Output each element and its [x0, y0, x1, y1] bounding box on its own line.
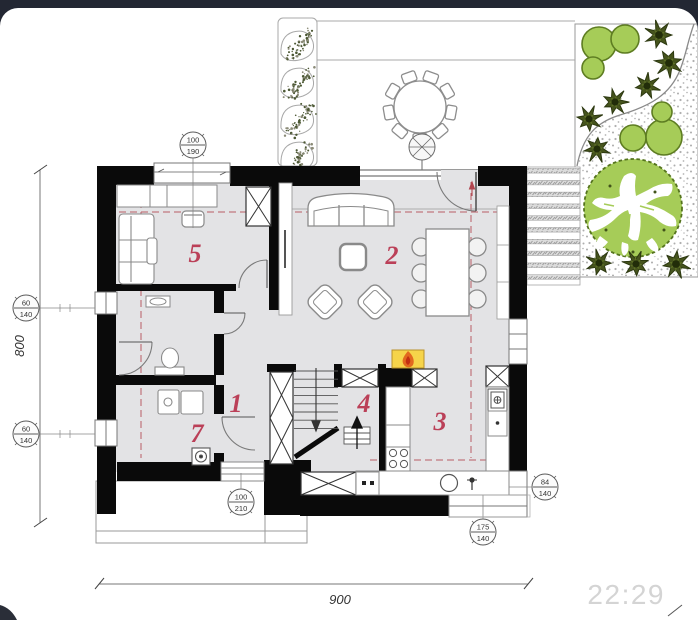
svg-text:800: 800 [12, 334, 27, 356]
svg-text:60: 60 [22, 425, 30, 434]
svg-text:190: 190 [187, 147, 200, 156]
svg-text:100: 100 [235, 493, 248, 502]
svg-text:175: 175 [477, 523, 490, 532]
svg-text:140: 140 [477, 534, 490, 543]
svg-text:4: 4 [357, 389, 371, 418]
svg-text:3: 3 [433, 407, 447, 436]
svg-text:900: 900 [329, 592, 351, 607]
svg-text:1: 1 [230, 389, 243, 418]
svg-text:140: 140 [20, 310, 33, 319]
svg-text:140: 140 [20, 436, 33, 445]
svg-text:5: 5 [189, 239, 202, 268]
svg-text:84: 84 [541, 478, 549, 487]
svg-text:210: 210 [235, 504, 248, 513]
svg-text:140: 140 [539, 489, 552, 498]
svg-text:100: 100 [187, 136, 200, 145]
svg-text:2: 2 [385, 241, 399, 270]
svg-text:60: 60 [22, 299, 30, 308]
svg-text:7: 7 [191, 419, 205, 448]
